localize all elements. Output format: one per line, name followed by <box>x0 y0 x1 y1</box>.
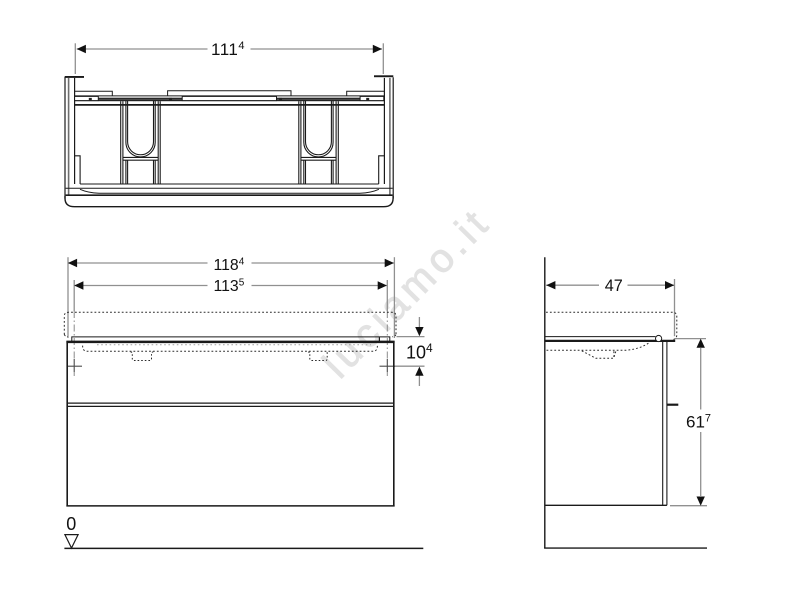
svg-text:0: 0 <box>66 514 76 534</box>
svg-text:104: 104 <box>406 341 433 363</box>
svg-text:1114: 1114 <box>211 40 245 59</box>
svg-text:1184: 1184 <box>214 257 245 275</box>
svg-text:617: 617 <box>686 413 711 432</box>
svg-text:1135: 1135 <box>214 278 245 296</box>
svg-text:47: 47 <box>605 277 623 295</box>
